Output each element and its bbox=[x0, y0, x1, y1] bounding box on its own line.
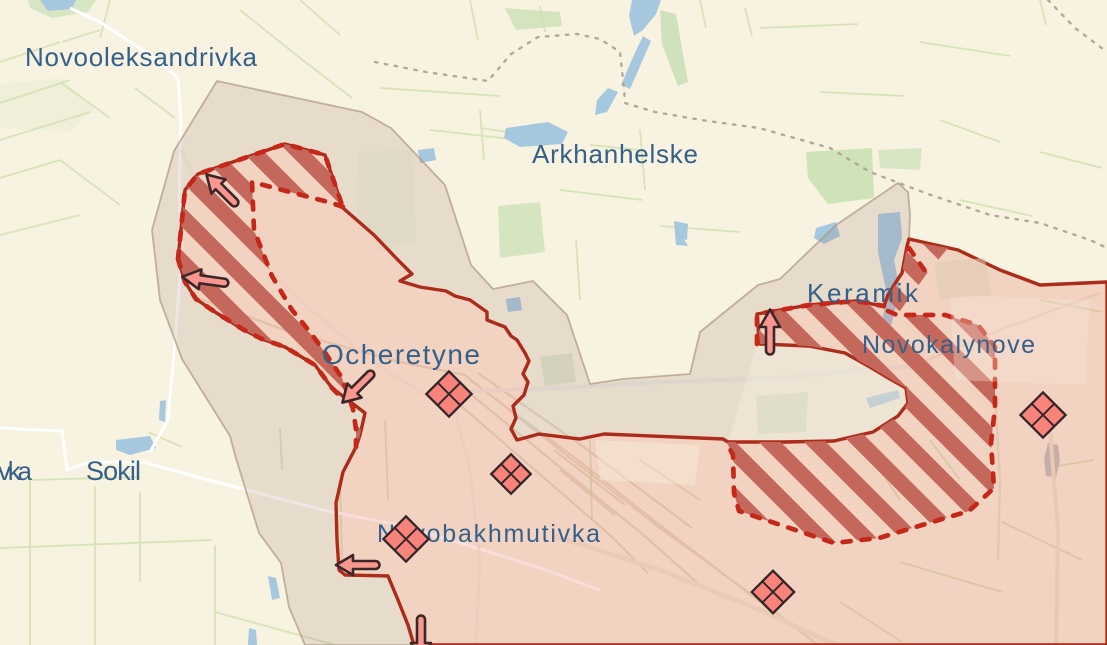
svg-text:Novooleksandrivka: Novooleksandrivka bbox=[25, 42, 258, 72]
svg-text:vka: vka bbox=[0, 456, 33, 486]
svg-text:Ocheretyne: Ocheretyne bbox=[322, 339, 480, 370]
svg-text:Novokalynove: Novokalynove bbox=[862, 331, 1035, 359]
svg-text:Keramik: Keramik bbox=[807, 278, 919, 308]
svg-text:Sokil: Sokil bbox=[86, 456, 141, 486]
svg-text:Arkhanhelske: Arkhanhelske bbox=[532, 139, 698, 169]
